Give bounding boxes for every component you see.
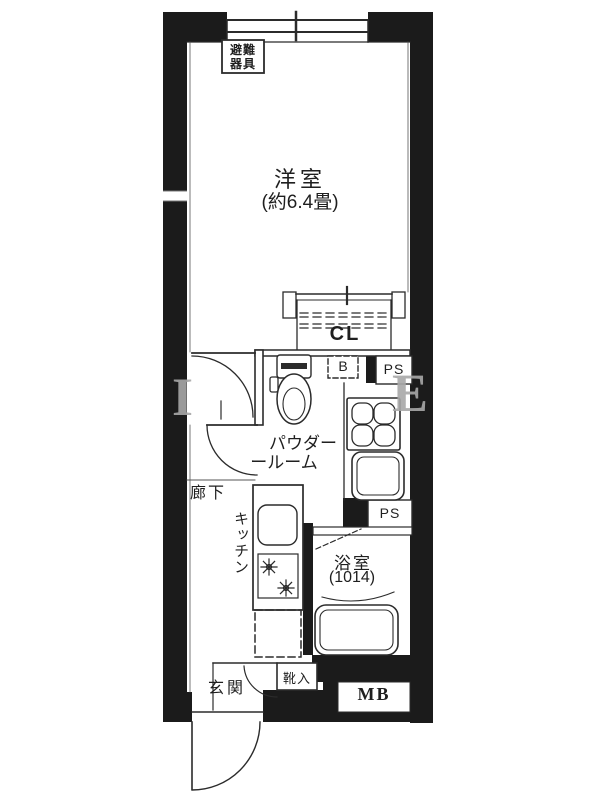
bathroom-size-label: (1014) [316, 569, 388, 587]
evacuation-equipment-line1: 避難 [230, 43, 256, 57]
bathroom-top-wall [313, 527, 412, 535]
main-room-door-arc [192, 356, 253, 417]
water-heater-label: B [328, 358, 358, 374]
meter-box-label: MB [338, 684, 410, 705]
kitchen-counter [253, 485, 303, 610]
closet-left-pilaster [283, 292, 296, 318]
toilet-flush-handle [270, 377, 278, 392]
top-wall-left-segment [163, 12, 227, 42]
closet-right-pilaster [392, 292, 405, 318]
stove-burner-1 [261, 559, 277, 575]
pipe-space-lower-label: PS [368, 505, 412, 521]
washbasin [352, 452, 404, 500]
bathtub [315, 605, 398, 655]
shoe-cabinet-label: 靴入 [277, 668, 317, 687]
evacuation-equipment-label: 避難 器具 [222, 40, 264, 73]
main-room-size-label: (約6.4畳) [235, 187, 365, 214]
left-wall-joint [161, 191, 189, 201]
watermark-letter-left: I [172, 370, 193, 424]
watermark-letter-right: E [392, 366, 428, 420]
wall-below-meter-box [338, 712, 410, 722]
stove-burner-2 [278, 580, 294, 596]
entrance-label: 玄関 [200, 674, 254, 698]
meter-box-left-wall [323, 682, 338, 722]
top-wall-right-segment [368, 12, 433, 42]
wall-below-bathtub [312, 655, 410, 682]
bottom-left-pillar [163, 692, 192, 722]
floorplan: 避難 器具 洋室 (約6.4畳) CL B PS PS パウダー ールーム 廊下… [0, 0, 600, 800]
toilet-lid-band [281, 363, 307, 369]
wall-left-of-lower-ps [343, 498, 368, 530]
bathroom-left-wall [303, 523, 313, 655]
bathroom-floor-curve [322, 592, 394, 601]
entrance-door-arc [192, 722, 260, 790]
wall-left-of-upper-ps [366, 353, 376, 383]
powder-room-label-line2: ールーム [236, 448, 332, 473]
toilet-bowl [277, 374, 311, 424]
refrigerator-space [255, 610, 301, 657]
corridor-label: 廊下 [190, 479, 226, 503]
kitchen-label: キッチン [230, 511, 251, 591]
toilet-nook-partition-wall [255, 350, 263, 425]
closet-label: CL [325, 323, 365, 346]
evacuation-equipment-line2: 器具 [230, 57, 256, 71]
